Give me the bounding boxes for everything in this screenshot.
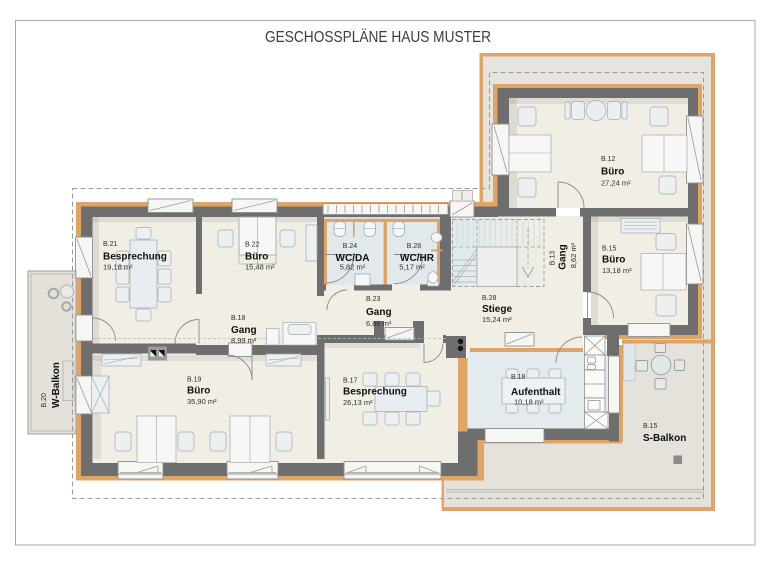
- svg-text:Aufenthalt: Aufenthalt: [511, 387, 561, 398]
- svg-text:S-Balkon: S-Balkon: [643, 433, 686, 444]
- svg-text:6,86 m²: 6,86 m²: [366, 319, 392, 328]
- svg-text:B.17: B.17: [343, 378, 358, 385]
- svg-text:B.13: B.13: [550, 251, 557, 266]
- svg-text:W-Balkon: W-Balkon: [51, 362, 62, 408]
- svg-text:B.18: B.18: [231, 315, 246, 322]
- svg-text:B.19: B.19: [187, 377, 202, 384]
- svg-text:B.21: B.21: [103, 241, 118, 248]
- svg-text:B.28: B.28: [482, 295, 497, 302]
- svg-text:B.15: B.15: [643, 423, 658, 430]
- svg-text:Büro: Büro: [245, 252, 268, 263]
- svg-text:Besprechung: Besprechung: [103, 252, 167, 263]
- svg-text:B.22: B.22: [245, 242, 260, 249]
- svg-text:Gang: Gang: [366, 307, 392, 318]
- svg-text:B.23: B.23: [366, 296, 381, 303]
- svg-text:Besprechung: Besprechung: [343, 387, 407, 398]
- svg-text:26,13 m²: 26,13 m²: [343, 398, 373, 407]
- svg-text:35,90 m²: 35,90 m²: [187, 397, 217, 406]
- svg-text:13,18 m²: 13,18 m²: [602, 266, 632, 275]
- svg-text:B.15: B.15: [602, 246, 617, 253]
- svg-text:15,24 m²: 15,24 m²: [482, 315, 512, 324]
- svg-text:15,48 m²: 15,48 m²: [245, 263, 275, 272]
- svg-text:Büro: Büro: [601, 167, 624, 178]
- svg-text:B.28: B.28: [407, 243, 422, 250]
- svg-text:B.24: B.24: [343, 243, 358, 250]
- svg-text:5,17 m²: 5,17 m²: [399, 263, 425, 272]
- svg-text:8,62 m²: 8,62 m²: [569, 242, 578, 268]
- svg-text:B.20: B.20: [41, 393, 48, 408]
- svg-text:Büro: Büro: [187, 386, 210, 397]
- svg-text:5,82 m²: 5,82 m²: [340, 263, 366, 272]
- svg-text:27,24 m²: 27,24 m²: [601, 179, 631, 188]
- svg-text:8,99 m²: 8,99 m²: [231, 336, 257, 345]
- svg-text:Stiege: Stiege: [482, 304, 512, 315]
- svg-text:GESCHOSSPLÄNE HAUS MUSTER: GESCHOSSPLÄNE HAUS MUSTER: [265, 28, 491, 46]
- svg-text:Gang: Gang: [231, 325, 257, 336]
- svg-text:Gang: Gang: [558, 244, 569, 270]
- svg-text:B.18: B.18: [511, 374, 526, 381]
- svg-text:10,18 m²: 10,18 m²: [514, 398, 544, 407]
- svg-text:Büro: Büro: [602, 255, 625, 266]
- svg-text:B.12: B.12: [601, 156, 616, 163]
- svg-text:19,18 m²: 19,18 m²: [103, 263, 133, 272]
